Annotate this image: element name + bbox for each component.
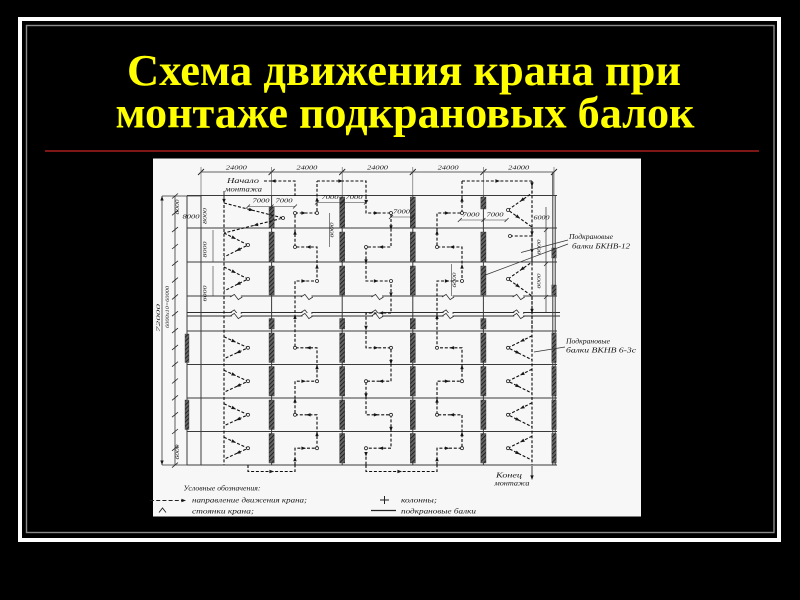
- svg-text:монтаже подкрановых балок: монтаже подкрановых балок: [116, 89, 696, 138]
- svg-text:монтажа: монтажа: [493, 480, 530, 488]
- svg-text:балки ВКНВ 6-3с: балки ВКНВ 6-3с: [566, 347, 637, 355]
- svg-text:монтажа: монтажа: [224, 185, 263, 194]
- svg-text:8000: 8000: [203, 241, 209, 257]
- svg-text:Подкрановые: Подкрановые: [565, 338, 611, 346]
- svg-text:6000: 6000: [175, 199, 181, 214]
- svg-text:24000: 24000: [508, 165, 530, 172]
- svg-text:7000: 7000: [393, 210, 410, 216]
- svg-text:24000: 24000: [226, 165, 248, 172]
- svg-text:6000: 6000: [537, 273, 543, 288]
- svg-text:колонны;: колонны;: [401, 496, 437, 505]
- svg-text:Подкрановые: Подкрановые: [568, 233, 614, 241]
- svg-text:Условные обозначения:: Условные обозначения:: [184, 485, 261, 493]
- svg-text:24000: 24000: [367, 165, 389, 172]
- svg-text:6000: 6000: [203, 285, 209, 301]
- svg-text:6000х10=60000: 6000х10=60000: [166, 285, 171, 328]
- svg-text:24000: 24000: [438, 165, 460, 172]
- svg-text:24000: 24000: [296, 165, 318, 172]
- svg-text:балки БКНВ-12: балки БКНВ-12: [572, 243, 630, 251]
- svg-text:7000: 7000: [346, 195, 363, 201]
- svg-text:подкрановые балки: подкрановые балки: [401, 507, 476, 516]
- svg-text:7000: 7000: [463, 213, 480, 219]
- svg-text:7000: 7000: [253, 199, 270, 205]
- svg-text:7000: 7000: [487, 213, 504, 219]
- svg-text:8000: 8000: [183, 215, 200, 221]
- svg-text:7000: 7000: [276, 199, 293, 205]
- svg-text:72000: 72000: [156, 304, 162, 332]
- svg-text:7000: 7000: [322, 195, 339, 201]
- svg-text:направление движения крана;: направление движения крана;: [192, 496, 307, 505]
- svg-text:Конец: Конец: [495, 472, 523, 480]
- svg-text:стоянки крана;: стоянки крана;: [192, 507, 254, 516]
- svg-text:6000: 6000: [534, 216, 550, 222]
- svg-text:6000: 6000: [330, 222, 336, 237]
- svg-text:8000: 8000: [203, 208, 209, 224]
- svg-text:6000: 6000: [175, 444, 181, 459]
- svg-text:6000: 6000: [452, 272, 458, 287]
